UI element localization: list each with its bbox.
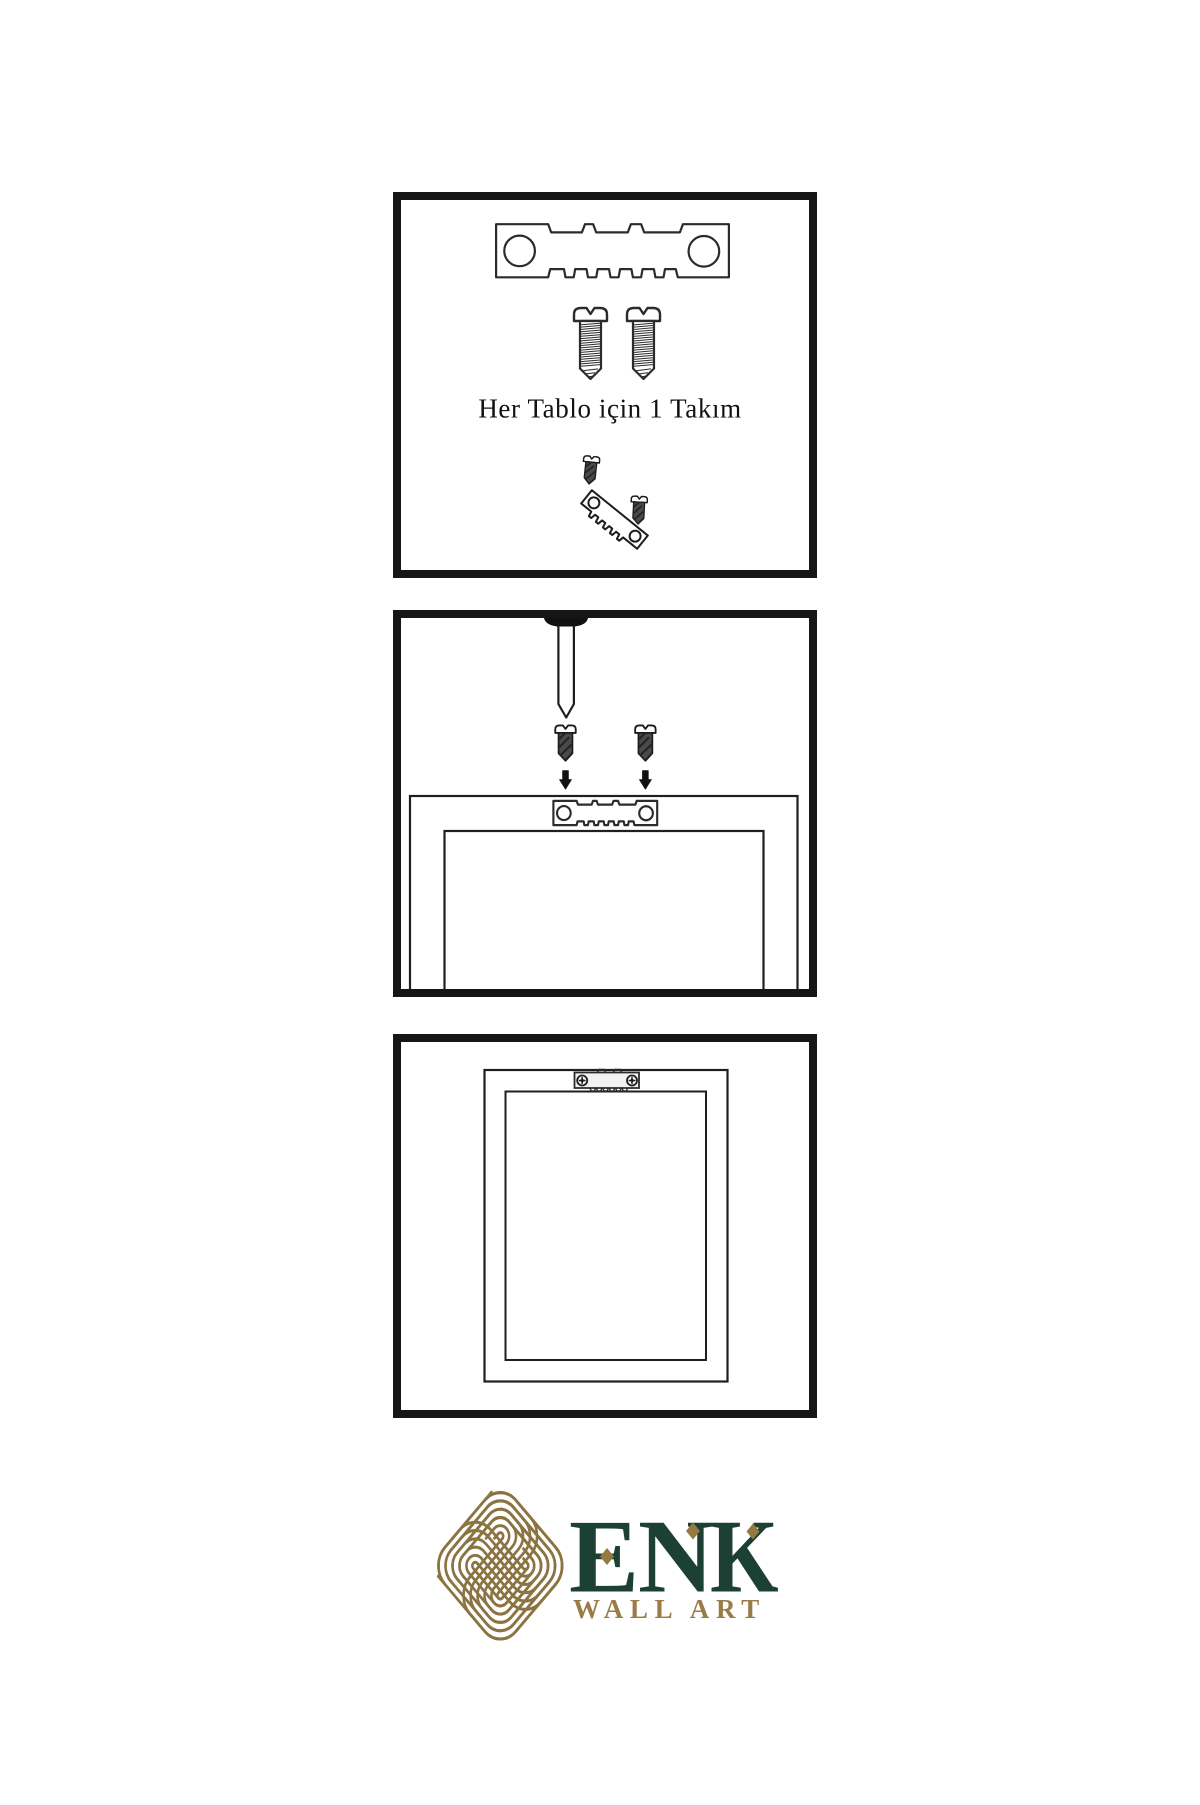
- svg-text:WALL ART: WALL ART: [573, 1594, 766, 1624]
- svg-text:Her Tablo için 1 Takım: Her Tablo için 1 Takım: [478, 394, 741, 424]
